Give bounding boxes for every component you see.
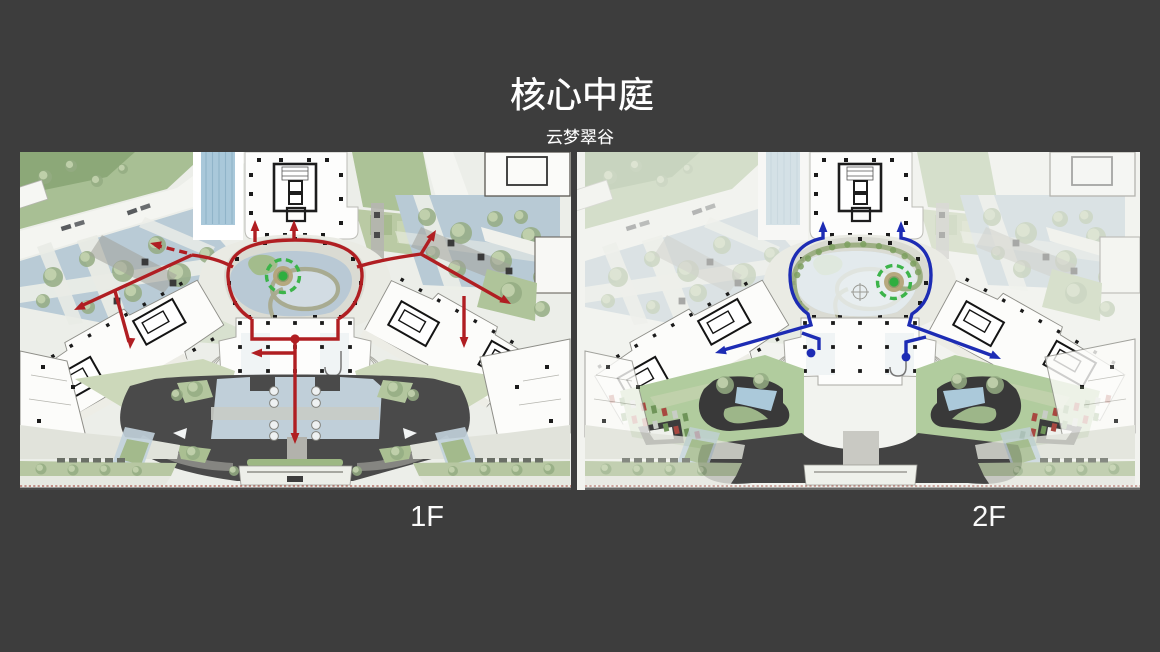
svg-text:2F: 2F	[972, 501, 1006, 533]
svg-text:1F: 1F	[410, 501, 444, 533]
